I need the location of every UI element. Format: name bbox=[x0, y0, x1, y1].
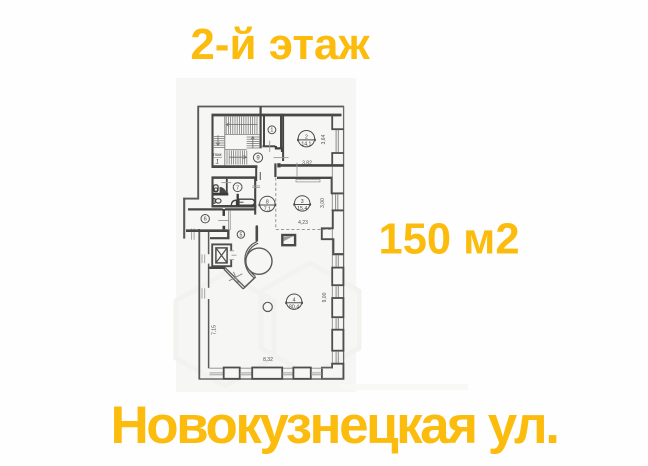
svg-text:5: 5 bbox=[239, 232, 242, 238]
svg-text:7,1: 7,1 bbox=[264, 207, 271, 213]
svg-text:9,00: 9,00 bbox=[322, 292, 328, 302]
svg-text:7,15: 7,15 bbox=[212, 325, 218, 335]
svg-text:пом.: пом. bbox=[213, 152, 223, 157]
svg-text:80,4: 80,4 bbox=[289, 305, 299, 311]
svg-text:8,32: 8,32 bbox=[263, 357, 273, 363]
svg-text:1: 1 bbox=[216, 159, 220, 166]
svg-text:4: 4 bbox=[293, 297, 296, 303]
svg-text:8: 8 bbox=[266, 200, 269, 206]
svg-text:3,82: 3,82 bbox=[302, 160, 312, 166]
svg-text:6: 6 bbox=[204, 217, 207, 223]
svg-text:4,23: 4,23 bbox=[298, 220, 308, 226]
svg-text:1: 1 bbox=[270, 128, 273, 134]
svg-text:150 м2: 150 м2 bbox=[379, 216, 520, 264]
svg-text:3,64: 3,64 bbox=[321, 134, 327, 144]
svg-text:2: 2 bbox=[305, 134, 308, 140]
svg-text:2-й этаж: 2-й этаж bbox=[190, 20, 370, 69]
svg-text:Новокузнецкая ул.: Новокузнецкая ул. bbox=[111, 396, 558, 455]
svg-text:15,4: 15,4 bbox=[297, 206, 307, 212]
svg-text:3,00: 3,00 bbox=[320, 198, 326, 208]
svg-text:3: 3 bbox=[301, 199, 304, 205]
svg-text:14,1: 14,1 bbox=[301, 142, 311, 148]
svg-text:7: 7 bbox=[236, 185, 239, 191]
